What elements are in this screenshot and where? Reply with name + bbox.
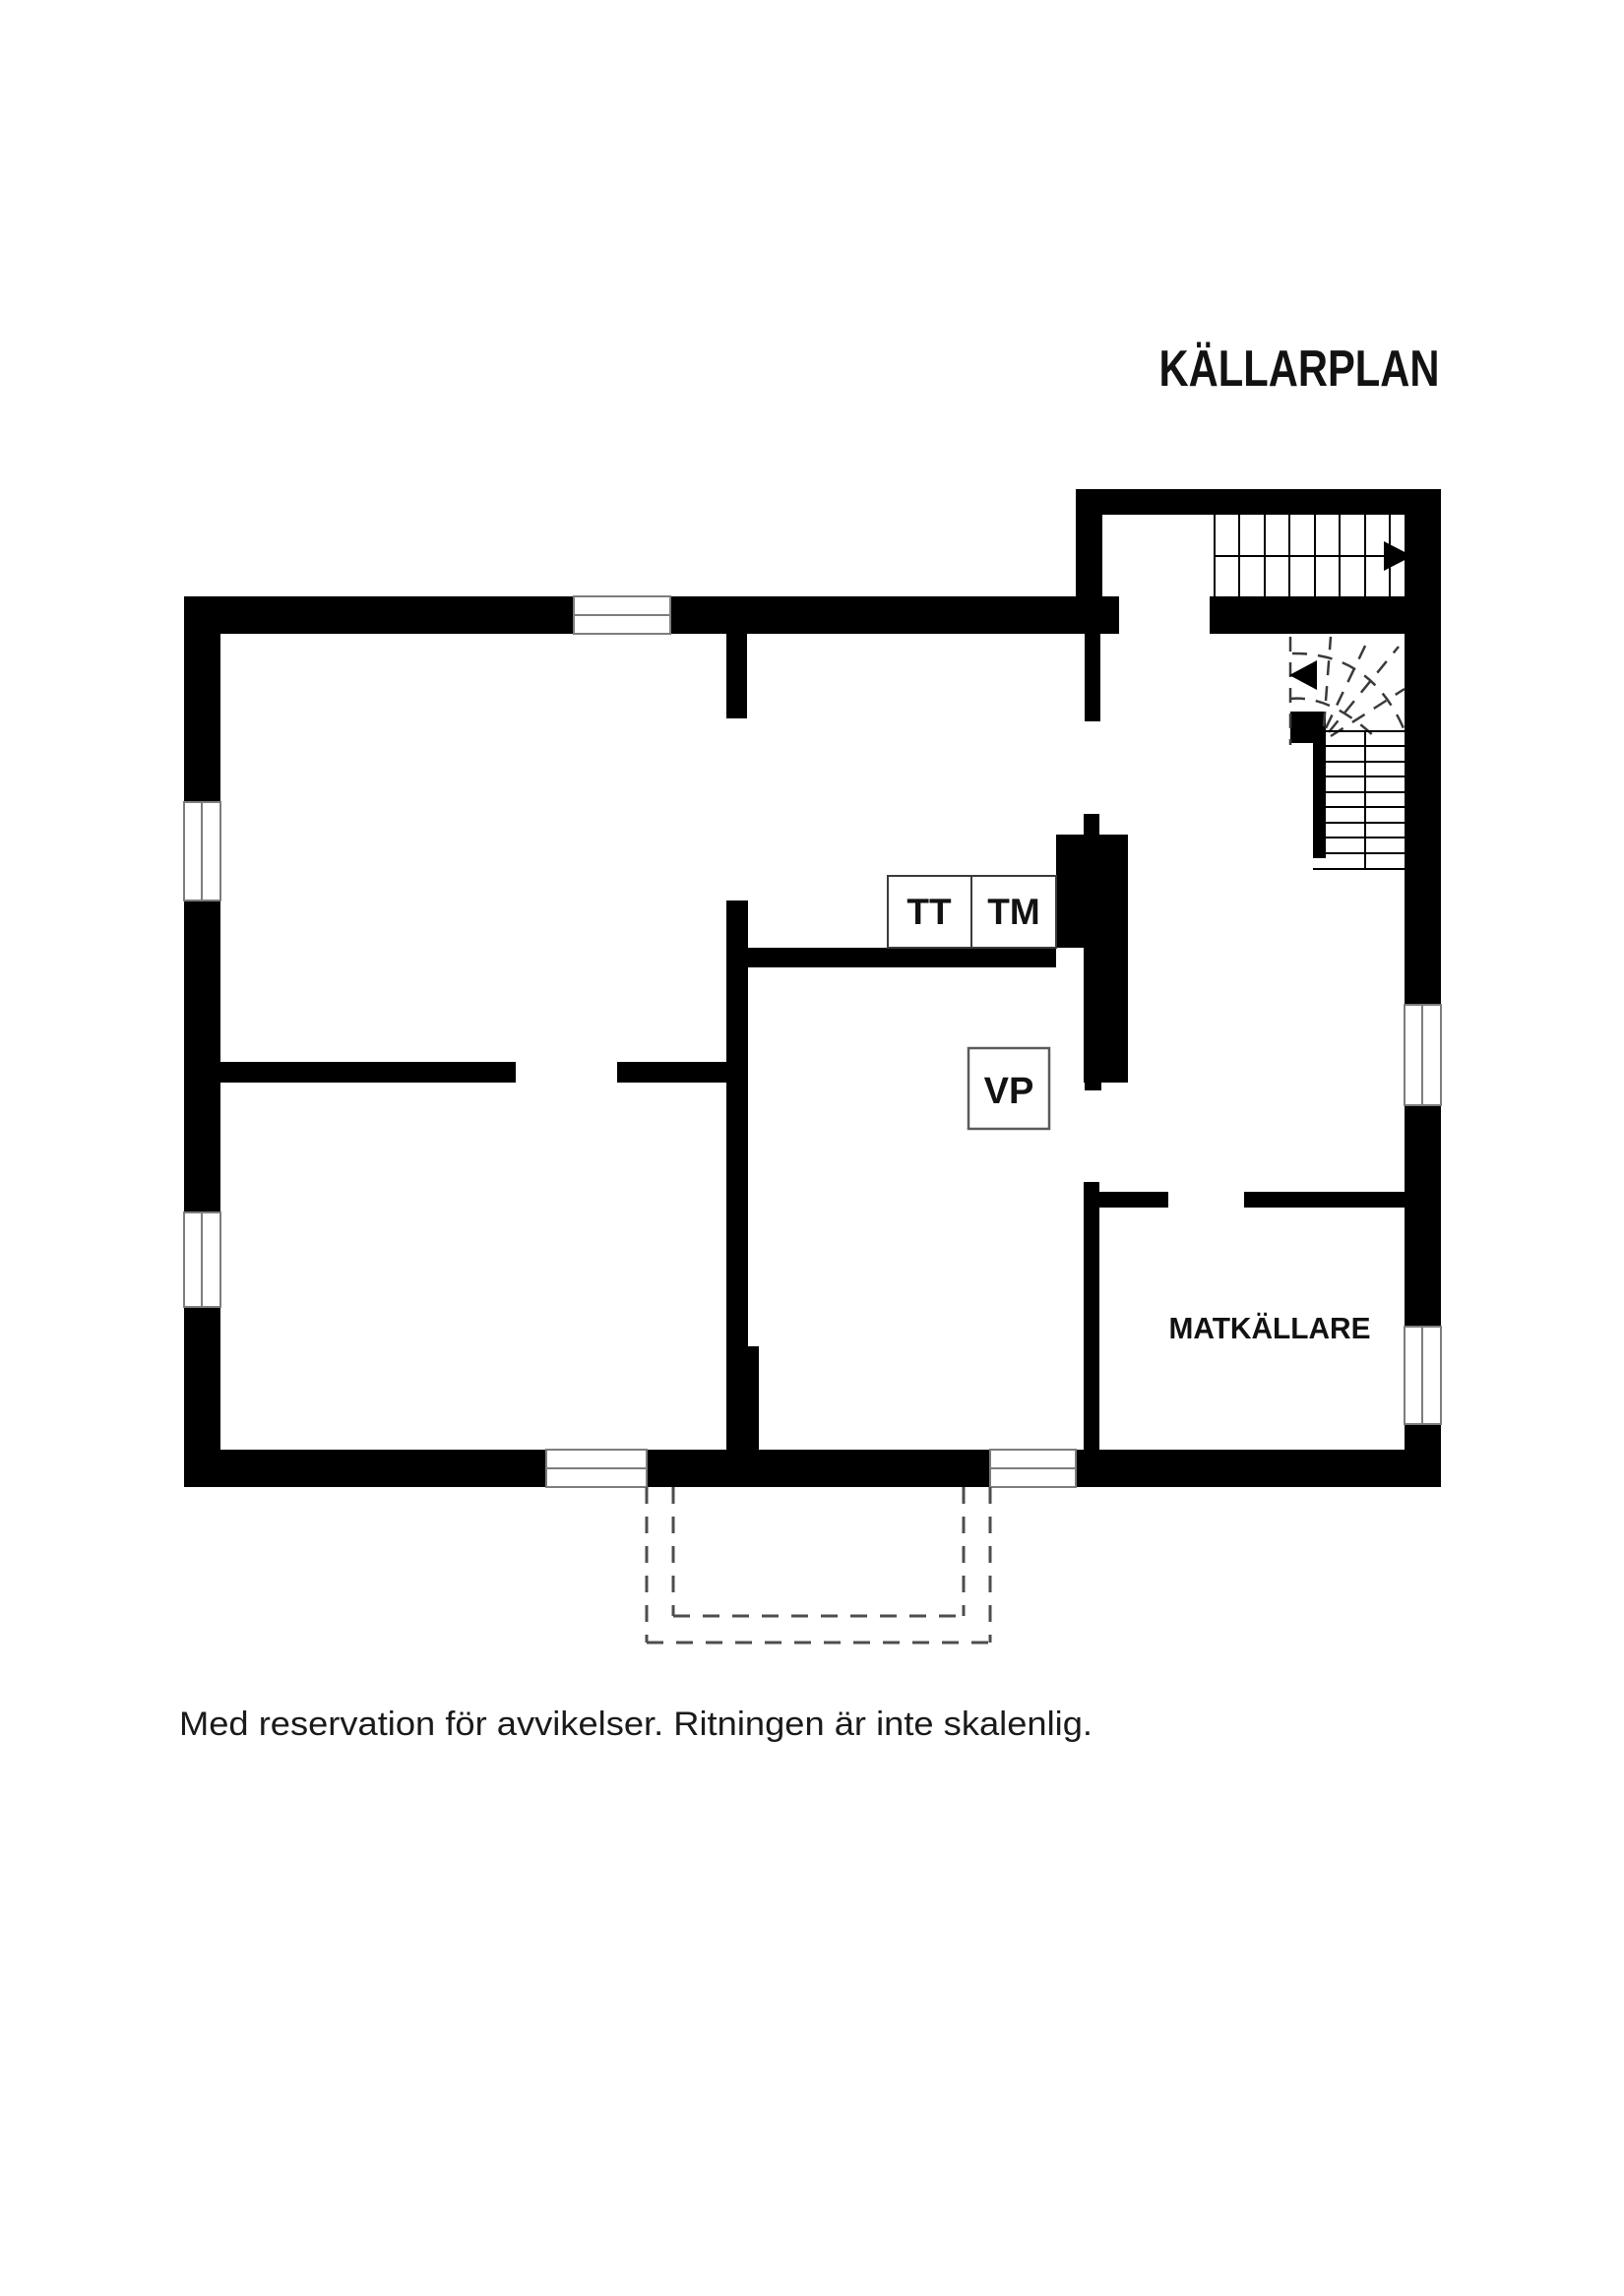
stair-lower-flight-treads: [1313, 731, 1405, 869]
fixture-label-tt: TT: [906, 892, 952, 932]
fixture-label-vp: VP: [984, 1071, 1034, 1112]
matkallare-wall-left: [1084, 1182, 1099, 1450]
window-right-lower: [1405, 1327, 1441, 1424]
window-top: [574, 596, 670, 634]
stair-newel-block: [1290, 712, 1326, 743]
chimney-block-step: [1085, 1083, 1101, 1090]
wall-stair-annex-top: [1076, 489, 1441, 515]
floor-plan-drawing: KÄLLARPLAN TT TM VP MATKÄLLARE Med reser…: [0, 0, 1624, 2296]
partition-left-divider-b: [617, 1062, 732, 1083]
matkallare-wall-top-a: [1099, 1192, 1168, 1208]
partition-below-laundry: [747, 948, 1056, 967]
page-title: KÄLLARPLAN: [1159, 341, 1440, 398]
partition-center-vertical-foot: [748, 1346, 759, 1450]
wall-bottom: [184, 1450, 1441, 1487]
partition-center-vertical: [726, 900, 748, 1450]
matkallare-wall-top-b: [1244, 1192, 1405, 1208]
wall-left: [184, 596, 220, 1487]
exterior-stair-dashed-outline: [647, 1487, 990, 1643]
window-bottom-left: [546, 1450, 647, 1487]
stair-down-arrow-icon: [1289, 660, 1317, 690]
fixture-label-tm: TM: [987, 892, 1039, 932]
partition-hall-upper: [1085, 634, 1100, 721]
windows: [184, 596, 1441, 1487]
wall-stair-annex-left: [1076, 489, 1102, 634]
window-bottom-right: [990, 1450, 1076, 1487]
chimney-block-lower: [1084, 948, 1128, 1083]
chimney-stub-top: [1084, 814, 1099, 835]
stair-upper-flight-treads: [1215, 515, 1390, 596]
disclaimer-text: Med reservation för avvikelser. Ritninge…: [179, 1706, 1093, 1743]
window-right-upper: [1405, 1005, 1441, 1105]
chimney-block-wide: [1056, 835, 1128, 948]
stair-inner-wall: [1313, 743, 1326, 858]
partition-upper-rooms-stub: [726, 634, 747, 718]
room-label-matkallare: MATKÄLLARE: [1169, 1311, 1371, 1345]
window-left-lower: [184, 1212, 220, 1307]
window-left-upper: [184, 802, 220, 900]
partition-left-divider-a: [220, 1062, 516, 1083]
